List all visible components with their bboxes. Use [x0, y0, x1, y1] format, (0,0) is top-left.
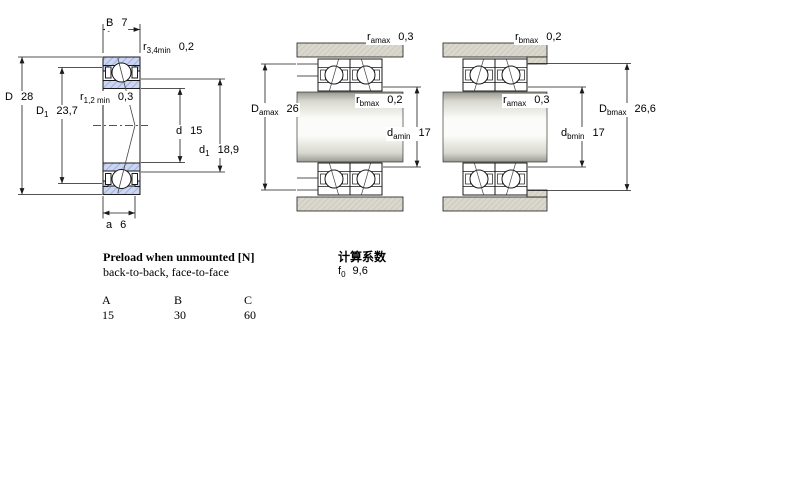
preload-col-c: C: [244, 293, 252, 307]
dim-label-B: B7: [105, 17, 128, 31]
preload-col-a: A: [102, 293, 111, 307]
dim-label-damin: damin17: [386, 127, 432, 141]
housing-shoulder-top: [527, 57, 547, 64]
bearing-pair-bottom: [463, 163, 527, 195]
dim-label-D1: D123,7: [35, 105, 79, 119]
dim-label-d: d15: [175, 125, 203, 139]
housing-bottom: [443, 197, 547, 211]
dim-label-a: a6: [105, 219, 127, 233]
bearing-pair-bottom: [318, 163, 382, 195]
dim-label-r12: r1,2 min0,3: [79, 91, 134, 105]
preload-col-b: B: [174, 293, 182, 307]
dim-label-rbmax-a: rbmax0,2: [355, 94, 404, 108]
dim-label-Damax: Damax26: [250, 103, 300, 117]
preload-subtitle: back-to-back, face-to-face: [103, 265, 229, 279]
calc-f0: f09,6: [338, 265, 368, 281]
bearing-drawing-page: B7 r3,4min0,2 D28 r1,2 min0,3 D123,7 d15…: [0, 0, 800, 500]
housing-bottom: [297, 197, 403, 211]
dim-label-d1: d118,9: [198, 144, 240, 158]
preload-value-b: 30: [174, 308, 186, 322]
dim-label-Dbmax: Dbmax26,6: [598, 103, 657, 117]
bearing-diagrams: [0, 0, 800, 340]
dim-D: [18, 57, 102, 195]
dim-label-D: D28: [4, 91, 34, 105]
dim-label-dbmin: dbmin17: [560, 127, 606, 141]
dim-label-r34: r3,4min0,2: [142, 41, 195, 55]
preload-value-c: 60: [244, 308, 256, 322]
dim-a: [103, 196, 135, 219]
dim-label-ramax-a: ramax0,3: [366, 31, 415, 45]
bearing-pair-top: [463, 59, 527, 91]
preload-title: Preload when unmounted [N]: [103, 250, 254, 264]
dim-label-rbmax-b: rbmax0,2: [514, 31, 563, 45]
calc-factors-title: 计算系数: [338, 250, 386, 264]
bearing-pair-top: [318, 59, 382, 91]
housing-shoulder-bottom: [527, 190, 547, 197]
dim-Damax: [261, 64, 296, 190]
dim-label-ramax-b: ramax0,3: [502, 94, 551, 108]
preload-value-a: 15: [102, 308, 114, 322]
